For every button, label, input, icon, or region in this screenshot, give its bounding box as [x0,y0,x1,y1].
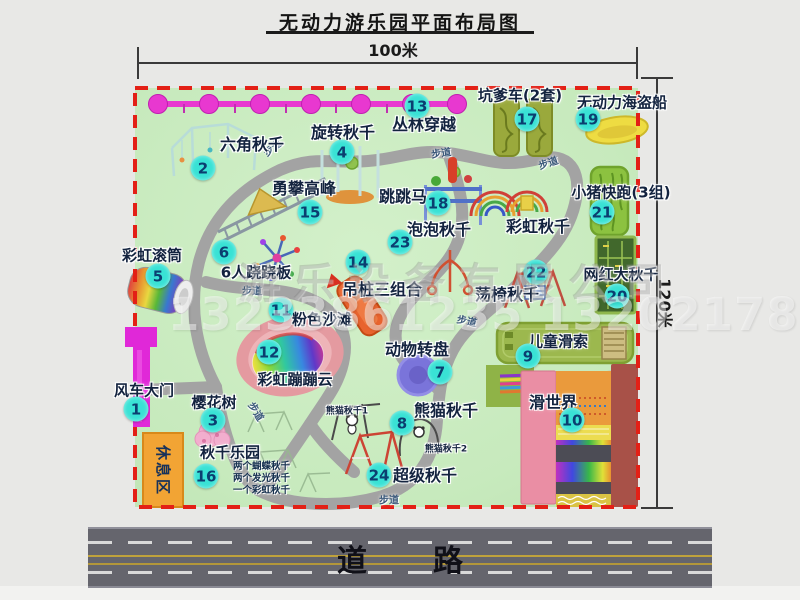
attraction-badge-23: 23 [388,230,413,255]
attraction-badge-16: 16 [194,464,219,489]
extra-label-1: 熊猫秋千1 [326,404,368,417]
attraction-badge-7: 7 [428,360,453,385]
title-underline [266,31,534,34]
path-label-3: 步道 [242,283,262,298]
attraction-label-23: 泡泡秋千 [407,216,471,240]
attraction-badge-5: 5 [146,264,171,289]
dimension-tick-right-bottom [641,507,673,509]
attraction-label-1: 风车大门 [114,380,174,401]
swing-note-0: 两个蝴蝶秋千 [233,461,290,473]
attraction-label-21: 小猪快跑(3组) [571,182,670,203]
attraction-badge-18: 18 [426,191,451,216]
attraction-label-17: 坑爹车(2套) [478,85,562,106]
attraction-badge-11: 11 [269,298,294,323]
swing-note-2: 一个彩虹秋千 [233,485,290,497]
attraction-label-12: 彩虹蹦蹦云 [257,369,332,390]
attraction-badge-17: 17 [515,107,540,132]
attraction-badge-20: 20 [605,284,630,309]
dimension-tick-right-top [641,77,673,79]
attraction-label-15: 勇攀高峰 [272,175,336,199]
attraction-badge-14: 14 [346,250,371,275]
attraction-badge-13: 13 [405,94,430,119]
swing-park-notes: 两个蝴蝶秋千两个发光秋千一个彩虹秋千 [233,461,290,497]
dimension-width-label: 100米 [368,37,417,61]
attraction-badge-8: 8 [390,411,415,436]
attraction-label-24: 超级秋千 [393,462,457,486]
extra-label-2: 熊猫秋千2 [425,442,467,455]
attraction-badge-15: 15 [298,200,323,225]
attraction-label-18: 跳跳马 [379,183,427,207]
attraction-badge-6: 6 [212,240,237,265]
attraction-label-20: 网红大秋千 [583,264,658,285]
dimension-height-label: 120米 [654,278,678,327]
attraction-label-14: 吊桩三组合 [342,276,422,300]
park-plan-image: 无动力游乐园平面布局图 100米 120米 休息区 [0,0,800,600]
dimension-line-top [137,62,638,64]
path-label-1: 步道 [430,143,452,161]
attraction-label-8: 熊猫秋千 [414,397,478,421]
attraction-badge-24: 24 [367,463,392,488]
attraction-badge-1: 1 [124,397,149,422]
road: 道路 [88,527,712,588]
attraction-badge-19: 19 [576,107,601,132]
dimension-tick-top-right [636,47,638,79]
attraction-badge-3: 3 [201,408,226,433]
attraction-badge-12: 12 [257,340,282,365]
attraction-label-6: 6人跷跷板 [221,262,291,283]
extra-label-0: 彩虹秋千 [506,213,570,237]
rest-area-box: 休息区 [142,432,184,508]
attraction-label-5: 彩虹滚筒 [122,245,182,266]
attraction-label-11: 粉色沙滩 [292,309,352,330]
dimension-tick-top-left [137,47,139,79]
attraction-badge-10: 10 [560,408,585,433]
attraction-badge-2: 2 [191,156,216,181]
rest-area-label: 休息区 [153,444,174,495]
attraction-badge-4: 4 [330,140,355,165]
road-label: 道路 [271,536,529,580]
attraction-badge-21: 21 [590,200,615,225]
sidewalk-strip [0,586,800,600]
swing-note-1: 两个发光秋千 [233,473,290,485]
attraction-badge-22: 22 [524,260,549,285]
attraction-label-7: 动物转盘 [385,336,449,360]
attraction-badge-9: 9 [516,344,541,369]
attraction-label-22: 荡椅秋千 [475,281,539,305]
attraction-label-2: 六角秋千 [220,131,284,155]
path-label-6: 步道 [379,492,399,507]
attraction-label-16: 秋千乐园 [200,442,260,463]
